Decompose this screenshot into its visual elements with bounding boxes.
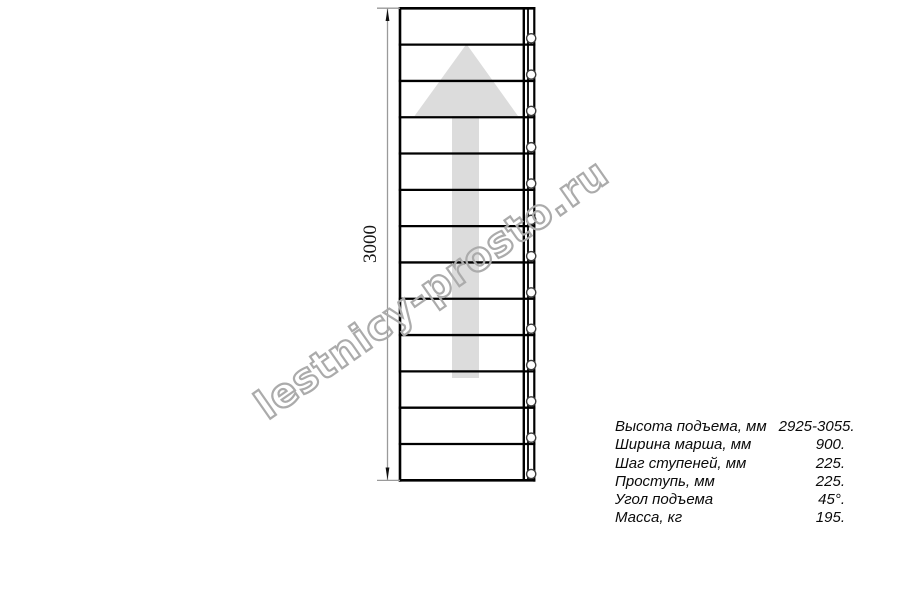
spec-value: 2925-3055. — [779, 418, 855, 436]
spec-value: 900. — [816, 436, 845, 454]
up-direction-arrow-icon — [415, 44, 519, 378]
bolt-hole-icon — [527, 106, 536, 115]
spec-row-width: Ширина марша, мм 900. — [615, 436, 845, 454]
spec-label: Высота подъема, мм — [615, 418, 767, 436]
bolt-hole-icon — [527, 360, 536, 369]
bolt-hole-icon — [527, 143, 536, 152]
bolt-hole-icon — [527, 433, 536, 442]
spec-row-height: Высота подъема, мм 2925-3055. — [615, 418, 845, 436]
bolt-hole-icon — [527, 179, 536, 188]
bolt-hole-icon — [527, 252, 536, 261]
bolt-hole-icon — [527, 215, 536, 224]
bolt-hole-icon — [527, 34, 536, 43]
spec-label: Ширина марша, мм — [615, 436, 751, 454]
spec-value: 195. — [816, 509, 845, 527]
spec-label: Угол подъема — [615, 491, 713, 509]
spec-value: 225. — [816, 455, 845, 473]
dimension-3000: 3000 — [360, 8, 400, 480]
dimension-arrowhead-down-icon — [386, 468, 390, 481]
dimension-arrowhead-up-icon — [386, 9, 390, 21]
bolt-hole-icon — [527, 324, 536, 333]
spec-row-mass: Масса, кг 195. — [615, 509, 845, 527]
spec-label: Проступь, мм — [615, 473, 715, 491]
bolt-hole-icon — [527, 469, 536, 478]
spec-label: Масса, кг — [615, 509, 682, 527]
dimension-label: 3000 — [360, 225, 381, 263]
page-canvas: 3000 lestnicy-prosto.ru Высота подъема, … — [0, 0, 900, 600]
spec-row-angle: Угол подъема 45°. — [615, 491, 845, 509]
bolt-hole-icon — [527, 288, 536, 297]
spec-label: Шаг ступеней, мм — [615, 455, 746, 473]
spec-row-tread: Проступь, мм 225. — [615, 473, 845, 491]
spec-list: Высота подъема, мм 2925-3055. Ширина мар… — [615, 418, 845, 528]
spec-row-step-pitch: Шаг ступеней, мм 225. — [615, 455, 845, 473]
spec-value: 225. — [816, 473, 845, 491]
bolt-hole-icon — [527, 397, 536, 406]
bolt-hole-icon — [527, 70, 536, 79]
spec-value: 45°. — [818, 491, 845, 509]
